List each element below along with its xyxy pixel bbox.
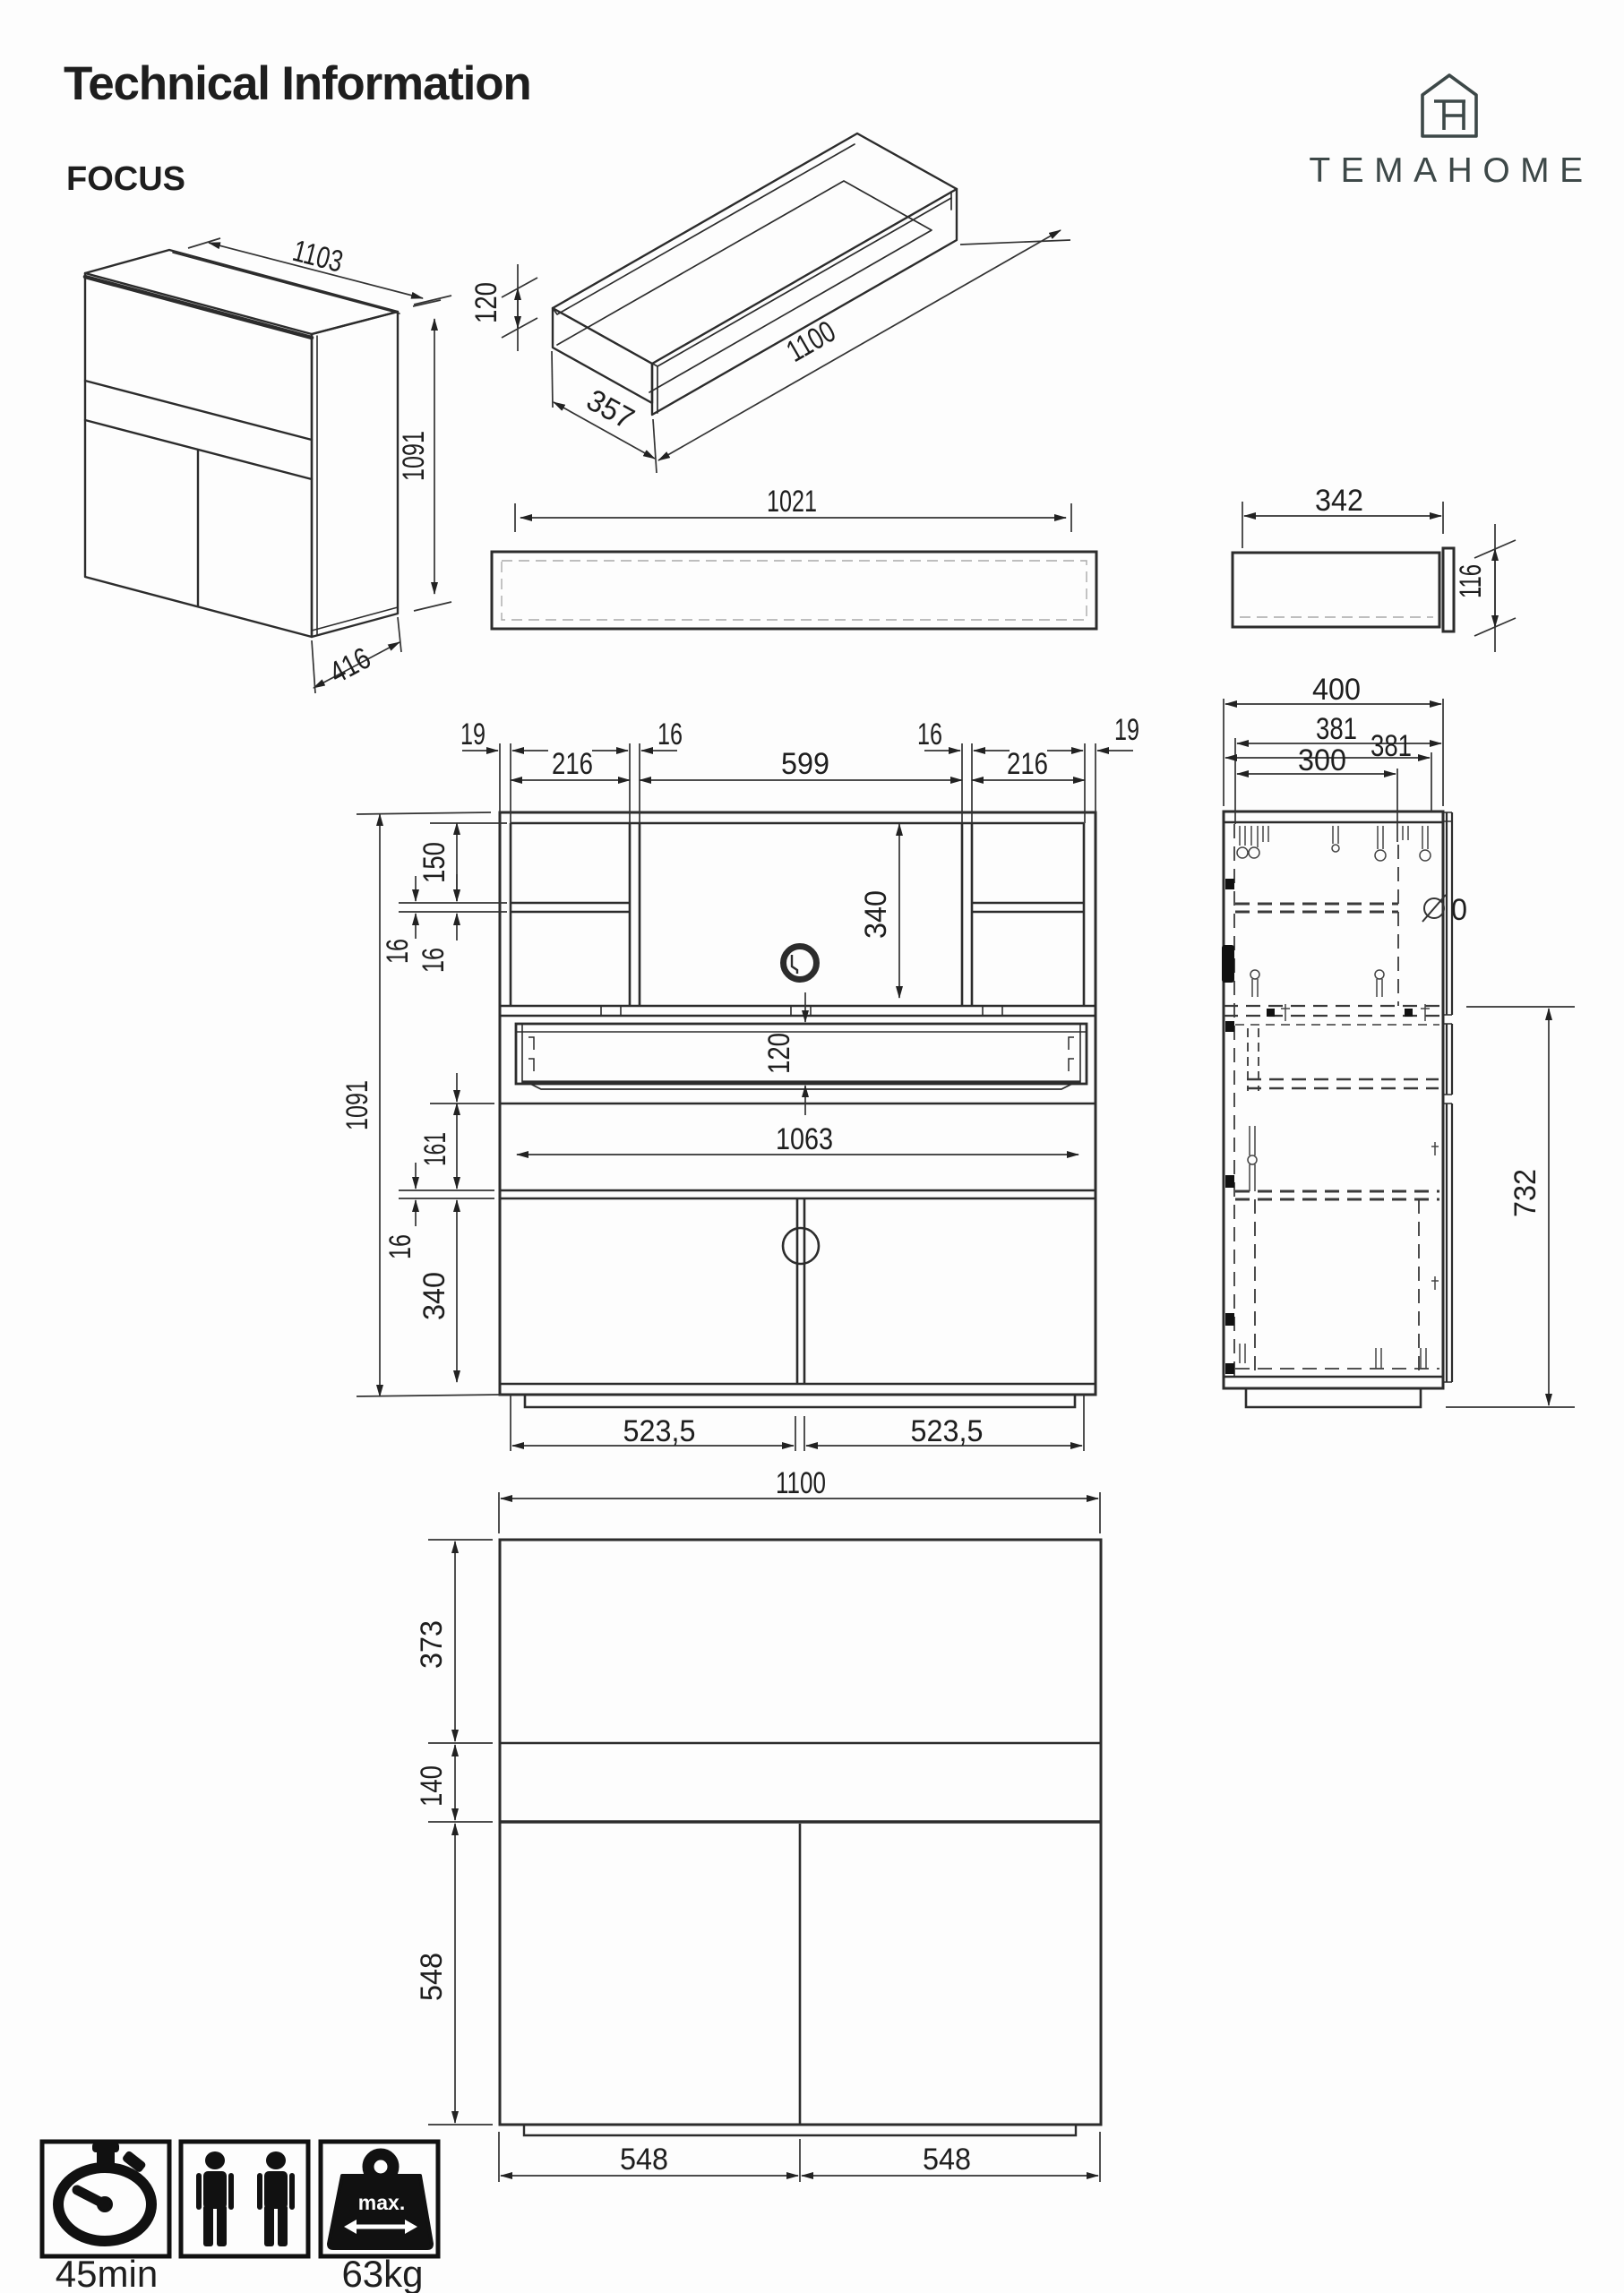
svg-text:120: 120: [762, 1033, 796, 1074]
svg-text:140: 140: [415, 1765, 449, 1807]
svg-text:342: 342: [1315, 484, 1363, 518]
svg-text:216: 216: [552, 747, 593, 781]
svg-text:45min: 45min: [56, 2253, 158, 2293]
svg-text:0: 0: [1451, 893, 1467, 927]
svg-text:1103: 1103: [289, 234, 347, 279]
svg-text:16: 16: [383, 1234, 417, 1259]
svg-text:1091: 1091: [340, 1080, 374, 1130]
svg-text:FOCUS: FOCUS: [66, 160, 185, 198]
svg-text:1021: 1021: [767, 485, 817, 519]
svg-text:548: 548: [620, 2143, 668, 2177]
svg-text:373: 373: [415, 1620, 449, 1669]
svg-text:400: 400: [1312, 673, 1361, 707]
svg-text:116: 116: [1454, 564, 1488, 598]
svg-text:19: 19: [1114, 713, 1139, 747]
svg-text:161: 161: [418, 1132, 452, 1166]
svg-text:340: 340: [859, 890, 893, 939]
svg-text:300: 300: [1298, 743, 1346, 777]
svg-text:1063: 1063: [776, 1122, 833, 1156]
svg-text:1091: 1091: [397, 431, 431, 481]
svg-text:216: 216: [1007, 747, 1048, 781]
svg-text:16: 16: [657, 717, 683, 751]
svg-text:381: 381: [1316, 712, 1357, 746]
svg-text:max.: max.: [358, 2191, 405, 2214]
svg-text:120: 120: [469, 282, 503, 323]
svg-text:16: 16: [381, 939, 415, 964]
svg-text:416: 416: [324, 641, 376, 691]
svg-text:63kg: 63kg: [341, 2253, 423, 2293]
svg-text:150: 150: [417, 842, 451, 883]
svg-text:548: 548: [415, 1953, 449, 2001]
svg-text:Technical Information: Technical Information: [64, 57, 531, 110]
svg-text:16: 16: [917, 717, 942, 751]
svg-text:599: 599: [781, 747, 829, 781]
svg-text:16: 16: [417, 948, 451, 973]
svg-text:523,5: 523,5: [623, 1414, 696, 1448]
svg-text:TEMAHOME: TEMAHOME: [1309, 151, 1593, 190]
svg-text:340: 340: [417, 1272, 451, 1320]
svg-text:381: 381: [1371, 729, 1412, 763]
svg-text:548: 548: [923, 2143, 971, 2177]
svg-text:523,5: 523,5: [911, 1414, 984, 1448]
svg-text:19: 19: [460, 717, 485, 751]
svg-text:732: 732: [1508, 1169, 1542, 1217]
svg-text:1100: 1100: [776, 1466, 826, 1500]
